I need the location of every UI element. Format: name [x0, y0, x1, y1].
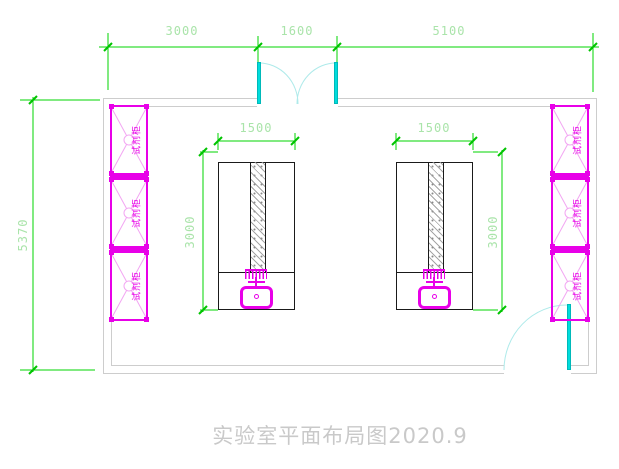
- cabinet-label: 试剂柜: [571, 125, 584, 155]
- sink-left-drain: [254, 294, 259, 299]
- cabinet-label: 试剂柜: [571, 271, 584, 301]
- cabinet-separator: [110, 248, 148, 251]
- drawing-title: 实验室平面布局图2020.9: [212, 420, 467, 450]
- cabinet-corner-cap: [550, 317, 555, 322]
- floor-plan-canvas: 3000 1600 5100 5370 1500 1500 3000 3000 …: [0, 0, 619, 469]
- sink-right-drain: [432, 294, 437, 299]
- bench-left-hatched-strip: [250, 162, 266, 272]
- cabinet-separator: [551, 248, 589, 251]
- bench-right-width-label: 1500: [418, 121, 451, 135]
- cabinet-corner-cap: [109, 317, 114, 322]
- dimension-lines: [20, 33, 599, 372]
- cabinet-corner-cap: [585, 104, 590, 109]
- cabinet-corner-cap: [144, 104, 149, 109]
- cabinet-corner-cap: [144, 317, 149, 322]
- cabinet-corner-cap: [550, 104, 555, 109]
- cabinet-corner-cap: [109, 104, 114, 109]
- cabinet-separator: [551, 175, 589, 178]
- cabinet-label: 试剂柜: [130, 125, 143, 155]
- bench-right-length-label: 3000: [486, 216, 500, 249]
- dim-room-height-label: 5370: [16, 219, 30, 252]
- dim-top-middle-label: 1600: [281, 24, 314, 38]
- drawing-overlay: [0, 0, 619, 469]
- cabinet-label: 试剂柜: [130, 271, 143, 301]
- cabinet-corner-cap: [585, 317, 590, 322]
- dim-top-left-label: 3000: [166, 24, 199, 38]
- sink-right-tap-bar: [426, 281, 443, 283]
- cabinet-label: 试剂柜: [130, 198, 143, 228]
- top-door-right-leaf: [334, 62, 338, 104]
- sink-left-tap-bar: [248, 281, 265, 283]
- dim-top-right-label: 5100: [433, 24, 466, 38]
- cabinet-label: 试剂柜: [571, 198, 584, 228]
- cabinet-separator: [110, 175, 148, 178]
- cabinet-decor: [110, 105, 589, 321]
- top-door-left-swing-arc: [259, 63, 298, 104]
- bench-left-width-label: 1500: [240, 121, 273, 135]
- bench-right-hatched-strip: [428, 162, 444, 272]
- top-door-right-swing-arc: [297, 63, 336, 104]
- top-door-left-leaf: [257, 62, 261, 104]
- bench-left-length-label: 3000: [183, 216, 197, 249]
